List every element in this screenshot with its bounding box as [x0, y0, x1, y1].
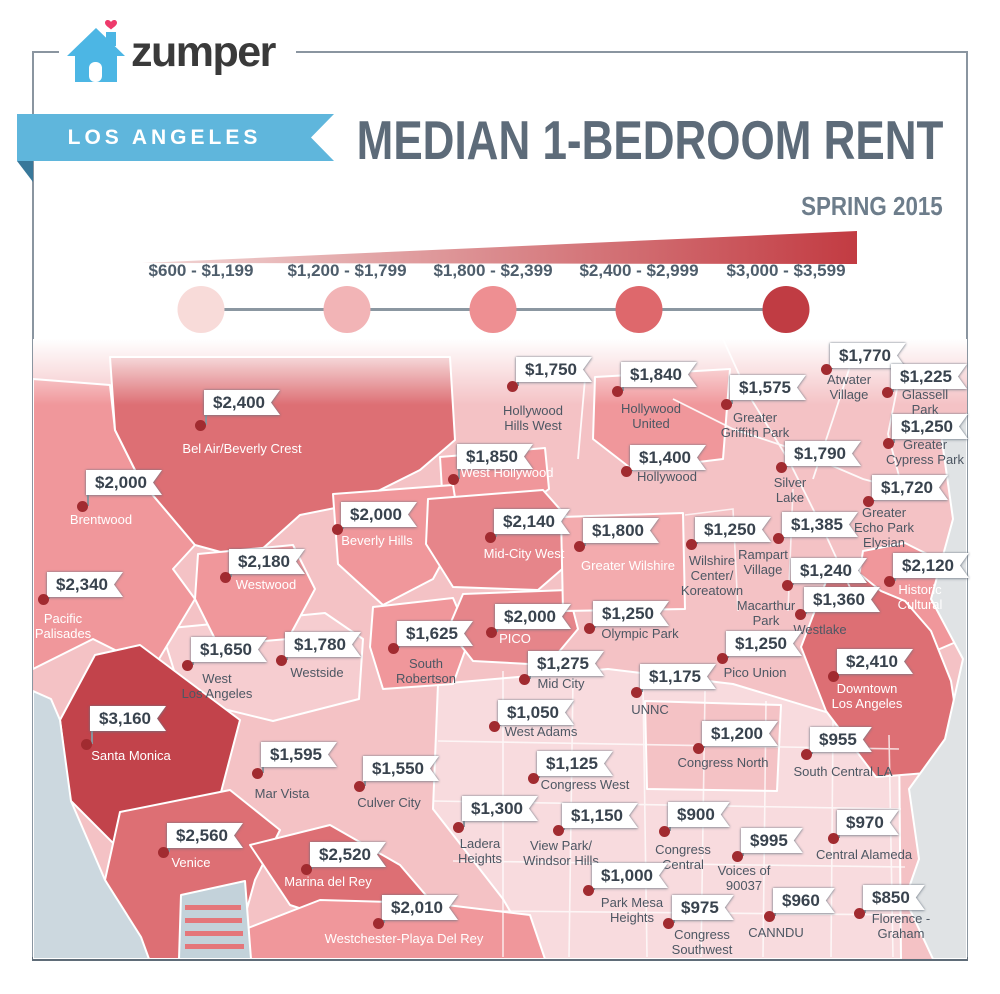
price-flag-label: $1,050 — [498, 700, 574, 725]
price-flag: $1,750 — [516, 357, 592, 382]
map-marker-dot — [764, 911, 775, 922]
map-marker-dot — [519, 674, 530, 685]
price-flag-label: $850 — [863, 885, 925, 910]
map-marker-dot — [158, 847, 169, 858]
map-marker-dot — [795, 609, 806, 620]
price-flag-label: $1,175 — [640, 664, 716, 689]
price-flag-label: $970 — [837, 810, 899, 835]
price-flag: $1,780 — [285, 632, 361, 657]
price-flag-label: $3,160 — [90, 706, 166, 731]
price-flag-label: $2,140 — [494, 509, 570, 534]
map-marker-dot — [489, 721, 500, 732]
price-flag: $2,560 — [167, 823, 243, 848]
map-marker-dot — [553, 825, 564, 836]
price-flag: $1,400 — [630, 445, 706, 470]
price-flag: $1,385 — [782, 512, 858, 537]
price-flag-label: $995 — [741, 828, 803, 853]
price-flag-label: $955 — [810, 727, 872, 752]
price-flag-label: $1,300 — [462, 796, 538, 821]
price-flag-label: $1,385 — [782, 512, 858, 537]
price-flag: $3,160 — [90, 706, 166, 731]
price-flag: $900 — [668, 802, 730, 827]
neighborhood-label: Pico Union — [724, 665, 787, 680]
infographic: zumper LOS ANGELES MEDIAN 1-BEDROOM RENT… — [0, 0, 1000, 994]
price-flag-label: $2,000 — [341, 502, 417, 527]
neighborhood-label: Beverly Hills — [341, 533, 413, 548]
price-flag-label: $1,595 — [261, 742, 337, 767]
neighborhood-label: Marina del Rey — [284, 874, 371, 889]
neighborhood-label: UNNC — [631, 702, 669, 717]
price-flag-label: $2,000 — [86, 470, 162, 495]
map-marker-dot — [882, 387, 893, 398]
price-flag: $1,125 — [537, 751, 613, 776]
neighborhood-label: Santa Monica — [91, 748, 171, 763]
price-flag: $1,625 — [397, 621, 473, 646]
price-flag: $1,225 — [891, 364, 967, 389]
price-flag-label: $1,780 — [285, 632, 361, 657]
map-marker-dot — [448, 474, 459, 485]
price-flag: $960 — [773, 888, 835, 913]
price-flag-label: $1,360 — [804, 587, 880, 612]
neighborhood-label: LaderaHeights — [458, 836, 502, 866]
map-marker-dot — [252, 768, 263, 779]
neighborhood-label: WilshireCenter/Koreatown — [681, 553, 743, 598]
price-flag-label: $2,410 — [837, 649, 913, 674]
price-flag-label: $900 — [668, 802, 730, 827]
price-flag: $1,250 — [726, 631, 802, 656]
price-flag-label: $2,120 — [893, 553, 969, 578]
neighborhood-label: Park MesaHeights — [601, 895, 663, 925]
neighborhood-label: SouthRobertson — [396, 656, 456, 686]
map-marker-dot — [717, 653, 728, 664]
price-flag: $1,175 — [640, 664, 716, 689]
neighborhood-label: CongressSouthwest — [672, 927, 733, 957]
price-flag-label: $1,250 — [593, 601, 669, 626]
neighborhood-label: CANNDU — [748, 925, 804, 940]
neighborhood-label: PacificPalisades — [35, 611, 91, 641]
price-flag: $850 — [863, 885, 925, 910]
price-flag-label: $1,400 — [630, 445, 706, 470]
price-flag-label: $1,150 — [562, 803, 638, 828]
map-marker-dot — [574, 541, 585, 552]
neighborhood-label: GreaterGriffith Park — [721, 410, 789, 440]
price-flag: $1,595 — [261, 742, 337, 767]
map-marker-dot — [659, 826, 670, 837]
map-marker-dot — [621, 466, 632, 477]
price-flag-label: $1,000 — [592, 863, 668, 888]
map-marker-dot — [721, 399, 732, 410]
map-marker-dot — [507, 381, 518, 392]
map-marker-dot — [453, 822, 464, 833]
neighborhood-label: Westwood — [236, 577, 296, 592]
neighborhood-label: GreaterEcho ParkElysian — [854, 505, 914, 550]
price-flag: $1,000 — [592, 863, 668, 888]
neighborhood-label: Westchester-Playa Del Rey — [325, 931, 484, 946]
price-flag: $1,720 — [872, 475, 948, 500]
neighborhood-label: PICO — [499, 631, 531, 646]
neighborhood-label: MacarthurPark — [737, 598, 796, 628]
price-flag-label: $975 — [672, 895, 734, 920]
price-flag: $2,140 — [494, 509, 570, 534]
map-marker-dot — [528, 773, 539, 784]
neighborhood-label: Voices of90037 — [718, 863, 771, 893]
neighborhood-label: Florence -Graham — [872, 911, 931, 941]
price-flag: $1,790 — [785, 441, 861, 466]
price-flag-label: $1,800 — [583, 518, 659, 543]
map-marker-dot — [828, 833, 839, 844]
map-marker-dot — [584, 623, 595, 634]
price-flag-label: $1,240 — [791, 558, 867, 583]
price-flag: $1,575 — [730, 375, 806, 400]
price-flag-label: $2,180 — [229, 549, 305, 574]
price-flag: $2,410 — [837, 649, 913, 674]
neighborhood-label: SilverLake — [774, 475, 807, 505]
map-marker-dot — [388, 643, 399, 654]
neighborhood-label: Mar Vista — [255, 786, 310, 801]
map-marker-dot — [612, 386, 623, 397]
price-flag-label: $1,625 — [397, 621, 473, 646]
map-marker-dot — [373, 918, 384, 929]
map-marker-dot — [776, 462, 787, 473]
price-flag: $975 — [672, 895, 734, 920]
neighborhood-label: HistoricCultural — [898, 582, 943, 612]
map-marker-dot — [182, 660, 193, 671]
price-flag: $2,180 — [229, 549, 305, 574]
neighborhood-label: Venice — [171, 855, 210, 870]
price-flag: $955 — [810, 727, 872, 752]
neighborhood-label: Greater Wilshire — [581, 558, 675, 573]
map-marker-dot — [732, 851, 743, 862]
map-marker-dot — [631, 687, 642, 698]
neighborhood-label: HollywoodHills West — [503, 403, 563, 433]
neighborhood-label: View Park/Windsor Hills — [523, 838, 599, 868]
map-marker-dot — [854, 908, 865, 919]
price-flag-label: $1,720 — [872, 475, 948, 500]
price-flag-label: $1,225 — [891, 364, 967, 389]
price-flag: $2,120 — [893, 553, 969, 578]
price-flag-label: $2,400 — [204, 390, 280, 415]
price-flag-label: $1,275 — [528, 651, 604, 676]
neighborhood-label: RampartVillage — [738, 547, 788, 577]
price-flag: $1,200 — [702, 721, 778, 746]
price-flag: $2,520 — [310, 842, 386, 867]
price-flag: $1,250 — [695, 517, 771, 542]
price-flag: $1,250 — [892, 414, 968, 439]
neighborhood-label: Congress North — [677, 755, 768, 770]
price-flag-label: $2,340 — [47, 572, 123, 597]
map-marker-dot — [801, 749, 812, 760]
neighborhood-label: Central Alameda — [816, 847, 912, 862]
price-flag-label: $1,250 — [892, 414, 968, 439]
price-flag: $1,150 — [562, 803, 638, 828]
price-flag-label: $1,250 — [695, 517, 771, 542]
price-flag-label: $1,200 — [702, 721, 778, 746]
map-marker-dot — [220, 572, 231, 583]
neighborhood-label: GlassellPark — [902, 387, 948, 417]
price-flag: $1,650 — [191, 637, 267, 662]
map-marker-dot — [884, 576, 895, 587]
price-flag: $2,000 — [341, 502, 417, 527]
neighborhood-label: South Central LA — [793, 764, 892, 779]
price-flag: $995 — [741, 828, 803, 853]
neighborhood-label: DowntownLos Angeles — [832, 681, 903, 711]
neighborhood-label: Olympic Park — [601, 626, 678, 641]
neighborhood-label: Hollywood — [637, 469, 697, 484]
neighborhood-label: GreaterCypress Park — [886, 437, 964, 467]
price-flag-label: $960 — [773, 888, 835, 913]
map-marker-dot — [583, 885, 594, 896]
price-flag: $2,340 — [47, 572, 123, 597]
map-marker-dot — [38, 594, 49, 605]
neighborhood-label: Mid City — [538, 676, 585, 691]
price-flag-label: $1,575 — [730, 375, 806, 400]
price-flag: $1,250 — [593, 601, 669, 626]
map-marker-dot — [693, 743, 704, 754]
map-marker-dot — [686, 539, 697, 550]
neighborhood-label: Congress West — [541, 777, 630, 792]
price-flag: $2,400 — [204, 390, 280, 415]
price-flag-label: $2,000 — [495, 604, 571, 629]
price-flag: $1,240 — [791, 558, 867, 583]
price-flag-label: $1,550 — [363, 756, 439, 781]
neighborhood-label: Culver City — [357, 795, 421, 810]
price-flag: $2,000 — [495, 604, 571, 629]
neighborhood-label: Mid-City West — [484, 546, 565, 561]
neighborhood-label: Bel Air/Beverly Crest — [182, 441, 301, 456]
neighborhood-label: HollywoodUnited — [621, 401, 681, 431]
price-flag: $1,550 — [363, 756, 439, 781]
price-flag-label: $1,750 — [516, 357, 592, 382]
neighborhood-label: Westside — [290, 665, 343, 680]
map-marker-dot — [486, 627, 497, 638]
price-flag: $1,360 — [804, 587, 880, 612]
price-flag-label: $1,650 — [191, 637, 267, 662]
map-marker-dot — [485, 532, 496, 543]
price-flag: $2,000 — [86, 470, 162, 495]
neighborhood-label: WestLos Angeles — [182, 671, 253, 701]
neighborhood-label: West Adams — [505, 724, 578, 739]
price-flag-label: $1,250 — [726, 631, 802, 656]
price-flag-label: $1,125 — [537, 751, 613, 776]
price-flag: $1,800 — [583, 518, 659, 543]
map-marker-dot — [782, 580, 793, 591]
neighborhood-label: West Hollywood — [461, 465, 554, 480]
price-flag: $1,050 — [498, 700, 574, 725]
price-flag: $1,300 — [462, 796, 538, 821]
map-annotations: $1,750HollywoodHills West$1,840Hollywood… — [0, 0, 1000, 994]
neighborhood-label: Brentwood — [70, 512, 132, 527]
map-marker-dot — [77, 501, 88, 512]
price-flag-label: $2,560 — [167, 823, 243, 848]
neighborhood-label: AtwaterVillage — [827, 372, 871, 402]
map-marker-dot — [195, 420, 206, 431]
price-flag-label: $2,010 — [382, 895, 458, 920]
price-flag-label: $1,790 — [785, 441, 861, 466]
price-flag: $970 — [837, 810, 899, 835]
map-marker-dot — [354, 781, 365, 792]
price-flag: $2,010 — [382, 895, 458, 920]
price-flag-label: $2,520 — [310, 842, 386, 867]
price-flag: $1,275 — [528, 651, 604, 676]
price-flag-label: $1,840 — [621, 362, 697, 387]
map-marker-dot — [773, 533, 784, 544]
map-marker-dot — [276, 655, 287, 666]
price-flag: $1,840 — [621, 362, 697, 387]
